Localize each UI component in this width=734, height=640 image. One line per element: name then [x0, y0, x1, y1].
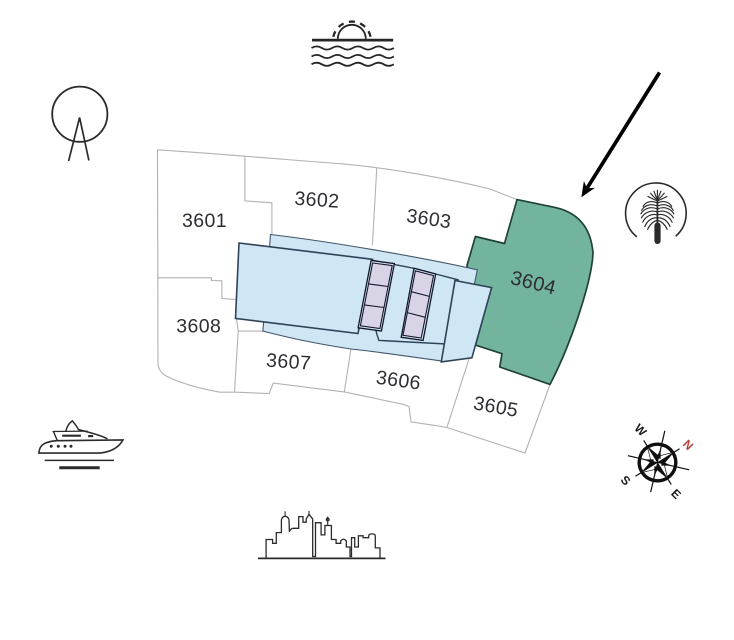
svg-text:N: N [680, 437, 696, 453]
svg-text:S: S [618, 473, 634, 489]
svg-text:3608: 3608 [176, 316, 221, 338]
svg-text:3607: 3607 [265, 350, 311, 375]
svg-text:3601: 3601 [182, 210, 227, 232]
svg-text:E: E [668, 486, 684, 502]
svg-text:W: W [632, 421, 650, 439]
svg-text:3602: 3602 [294, 188, 340, 213]
